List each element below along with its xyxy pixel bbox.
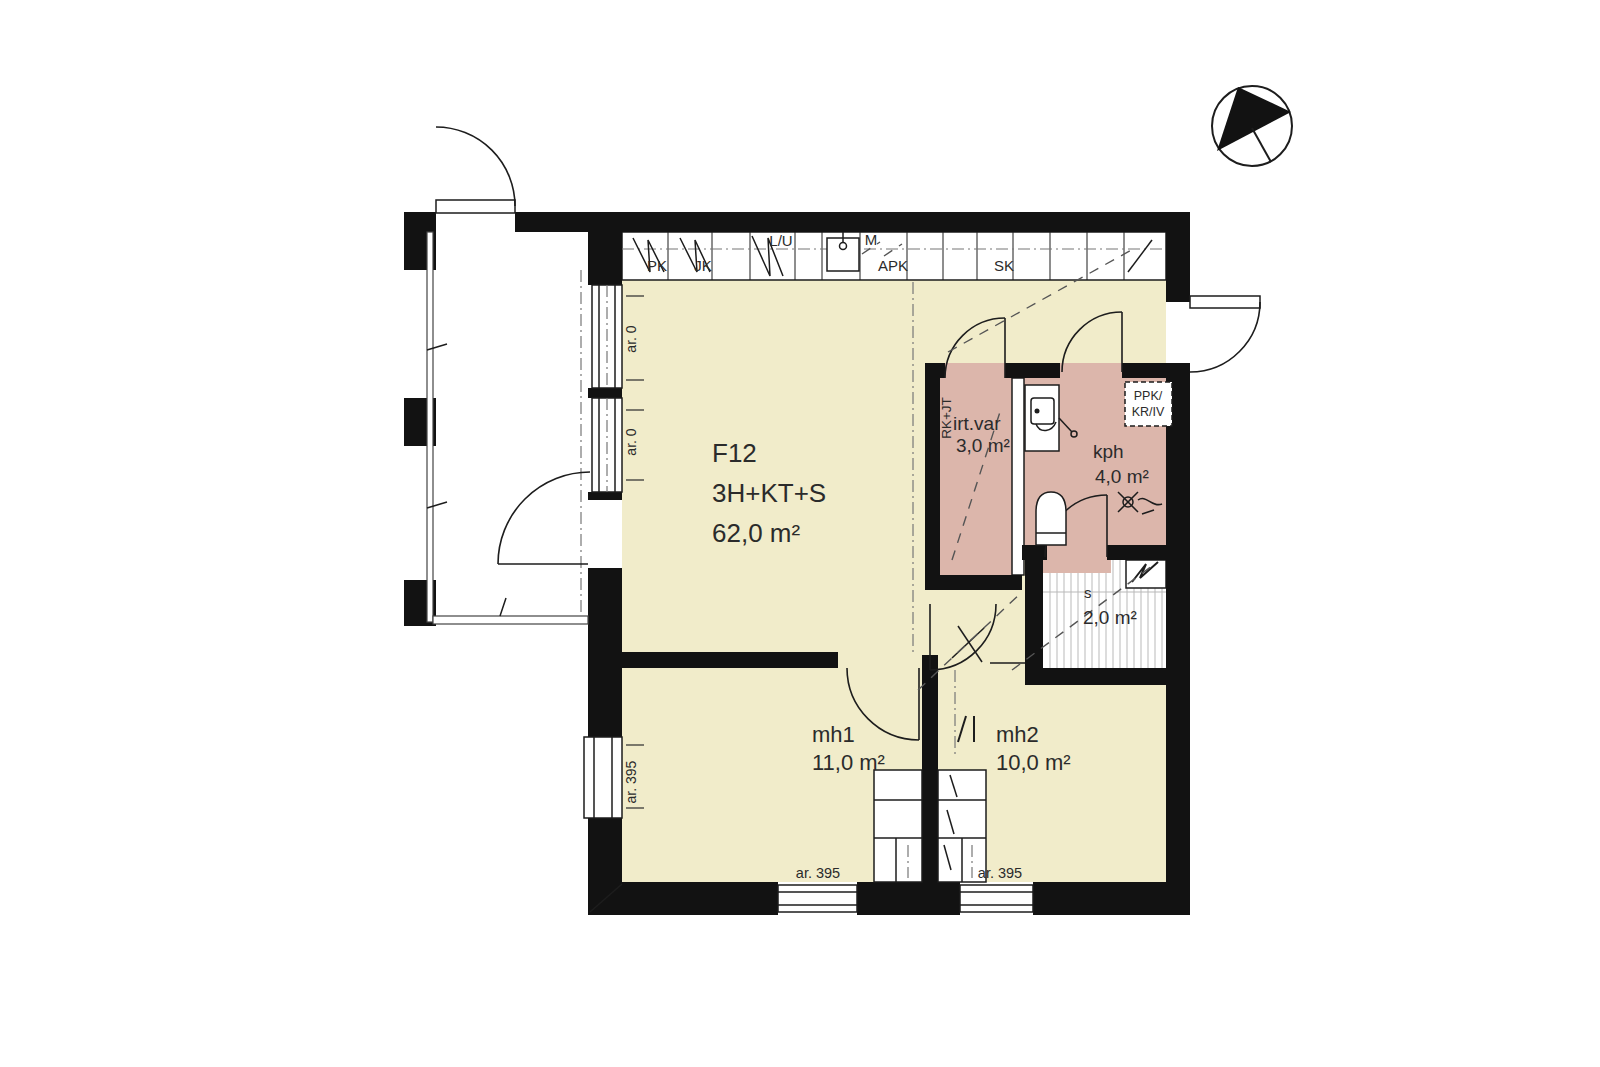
bathroom-label: kph	[1093, 441, 1124, 462]
left-window-top-marking: ar. 0	[623, 325, 639, 352]
cabinet-label-jk: JK	[694, 257, 712, 274]
storage-area: 3,0 m²	[956, 435, 1010, 456]
left-window-mid	[592, 398, 622, 492]
bottom-window-right-marking: ar. 395	[978, 865, 1022, 881]
north-arrow	[1212, 86, 1292, 166]
reserved-appliance-line1: PPK/	[1134, 389, 1163, 403]
sauna-wall-strip	[1043, 560, 1111, 573]
bottom-window-left-marking: ar. 395	[796, 865, 840, 881]
balcony-exterior-door	[436, 127, 515, 213]
floor-plan-page: PPK/ KR/IV	[0, 0, 1600, 1067]
left-window-top	[592, 285, 622, 388]
unit-id: F12	[712, 438, 757, 468]
balcony-access-door	[498, 472, 590, 564]
cabinet-label-m: M	[865, 231, 878, 248]
balcony-railing-bottom	[433, 616, 588, 624]
cabinet-label-sk: SK	[994, 257, 1014, 274]
cabinet-label-lu: L/U	[769, 232, 792, 249]
reserved-appliance-box: PPK/ KR/IV	[1125, 382, 1172, 426]
left-window-low	[584, 737, 622, 818]
floor-plan-drawing: PPK/ KR/IV	[0, 0, 1600, 1067]
unit-layout: 3H+KT+S	[712, 478, 826, 508]
bedroom1-area: 11,0 m²	[812, 750, 885, 775]
wardrobe-bedroom1	[874, 770, 922, 882]
sauna-area: 2,0 m²	[1083, 607, 1137, 628]
balcony-railing-left	[427, 232, 433, 622]
left-window-low-marking: ar. 395	[623, 760, 639, 803]
sauna-label: s	[1084, 584, 1092, 601]
entrance-door	[1190, 296, 1260, 372]
unit-area: 62,0 m²	[712, 518, 800, 548]
bedroom2-area: 10,0 m²	[996, 750, 1071, 775]
bottom-window-right	[960, 885, 1033, 912]
bedroom2-label: mh2	[996, 722, 1039, 747]
storage-duct-label: RK+JT	[939, 397, 954, 439]
left-window-mid-marking: ar. 0	[623, 428, 639, 455]
bedroom1-label: mh1	[812, 722, 855, 747]
bottom-window-left	[778, 885, 857, 912]
balcony	[427, 232, 588, 624]
storage-label: irt.var	[953, 413, 1001, 434]
bathroom-area: 4,0 m²	[1095, 466, 1149, 487]
cabinet-label-apk: APK	[878, 257, 908, 274]
cabinet-label-pk: PK	[647, 257, 667, 274]
reserved-appliance-line2: KR/IV	[1132, 405, 1165, 419]
toilet	[1036, 492, 1066, 545]
